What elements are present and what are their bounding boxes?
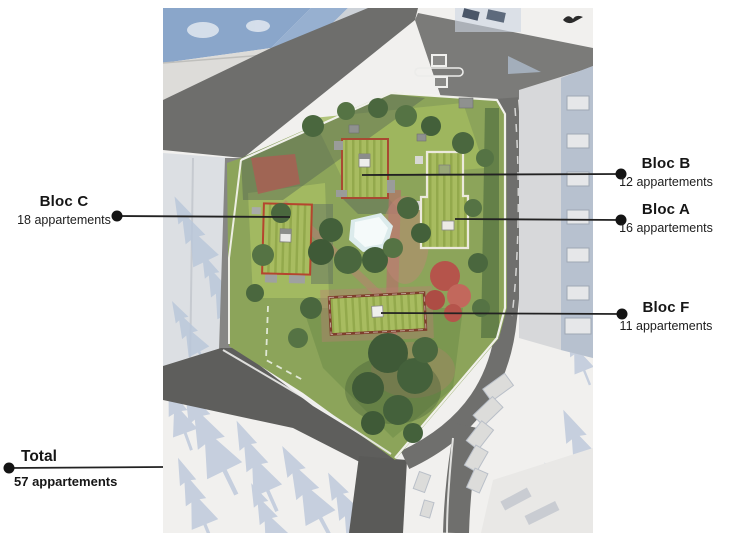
bloc-c-subtitle: 18 appartements bbox=[4, 213, 124, 228]
bloc-a-subtitle: 16 appartements bbox=[601, 221, 731, 236]
label-bloc-b: Bloc B 12 appartements bbox=[601, 155, 731, 190]
callout-dot-total bbox=[4, 463, 15, 474]
bloc-c-title: Bloc C bbox=[4, 193, 124, 211]
label-bloc-c: Bloc C 18 appartements bbox=[4, 193, 124, 228]
total-title: Total bbox=[14, 448, 174, 466]
total-subtitle: 57 appartements bbox=[14, 474, 174, 490]
bloc-b-title: Bloc B bbox=[601, 155, 731, 173]
bloc-f-title: Bloc F bbox=[601, 299, 731, 317]
bloc-b-subtitle: 12 appartements bbox=[601, 175, 731, 190]
label-bloc-f: Bloc F 11 appartements bbox=[601, 299, 731, 334]
right-building bbox=[519, 66, 593, 358]
site-plan-svg bbox=[163, 8, 593, 533]
page: { "annotations": { "bloc_b": {"title": "… bbox=[0, 0, 736, 552]
bloc-f-building bbox=[329, 293, 426, 335]
bloc-b-building bbox=[334, 139, 395, 198]
bloc-a-title: Bloc A bbox=[601, 201, 731, 219]
label-bloc-a: Bloc A 16 appartements bbox=[601, 201, 731, 236]
label-total: Total 57 appartements bbox=[14, 448, 174, 490]
site-plan-image bbox=[163, 8, 593, 533]
bloc-f-subtitle: 11 appartements bbox=[601, 319, 731, 334]
